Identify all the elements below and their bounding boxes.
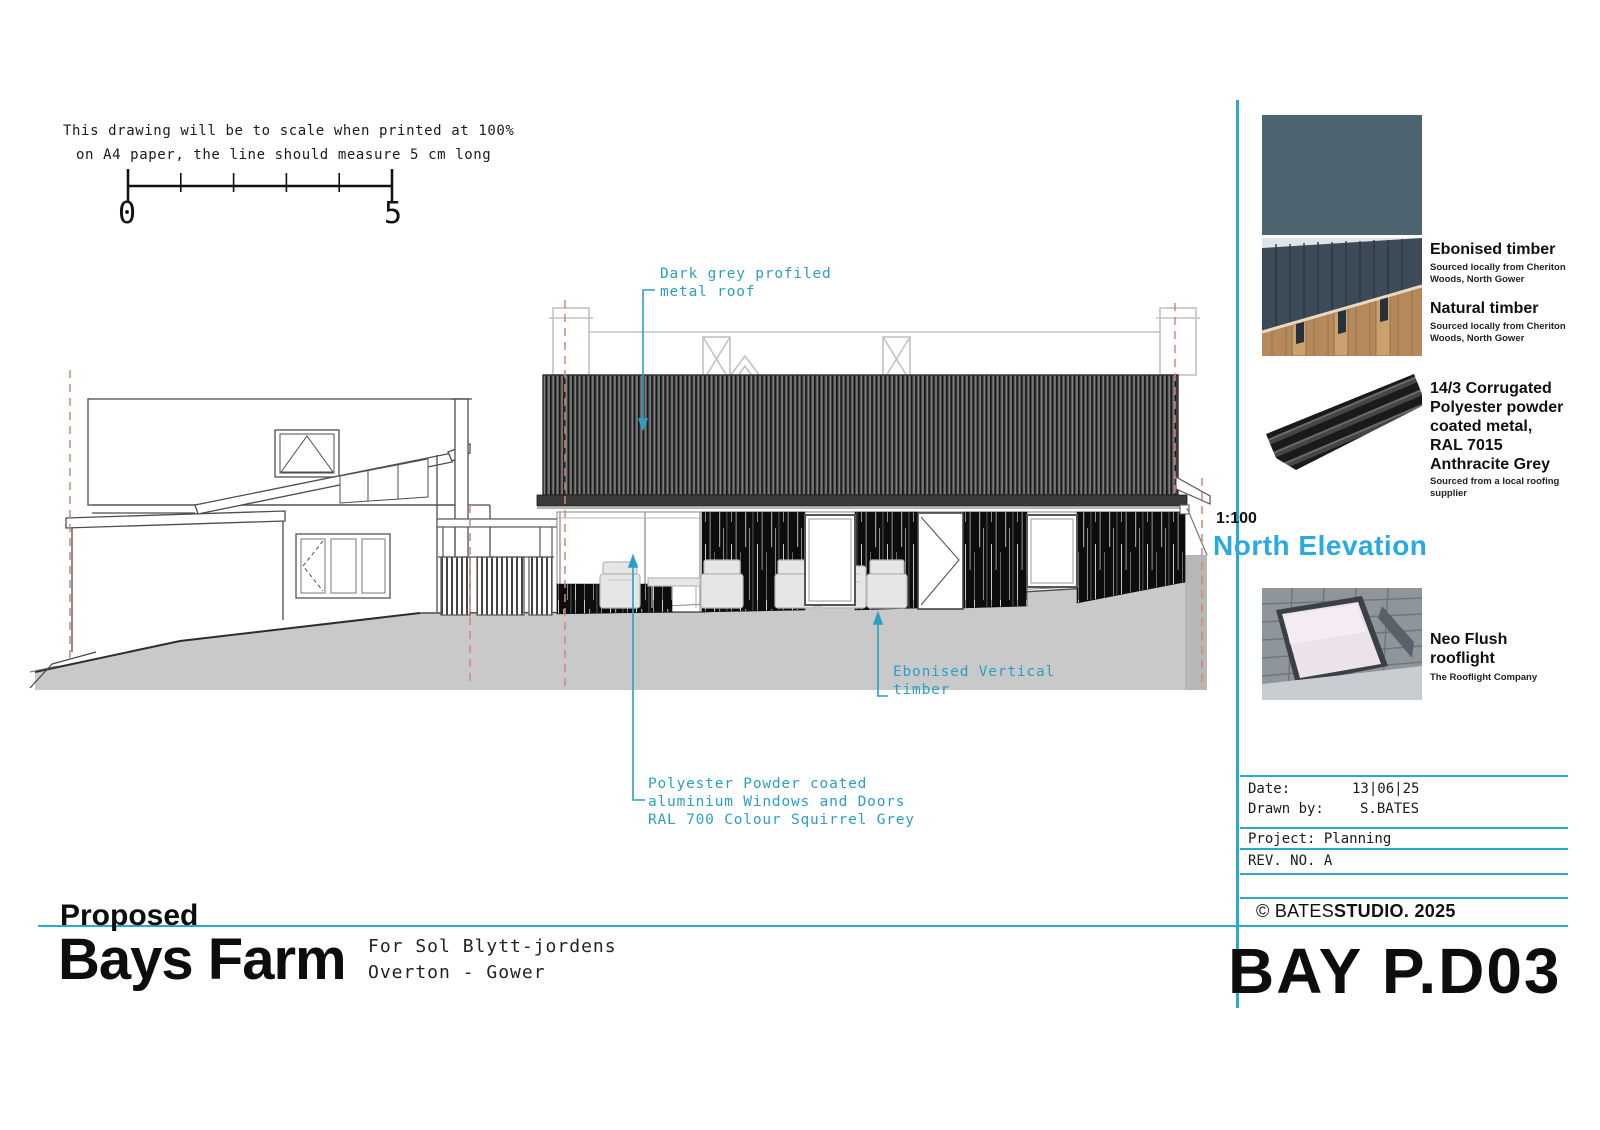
titleblock-rule [1240,827,1568,829]
titleblock-rule [1240,873,1568,875]
material-source-corrugated-metal: Sourced from a local roofing supplier [1430,476,1580,500]
material-source-natural-timber: Sourced locally from Cheriton Woods, Nor… [1430,321,1580,345]
view-title: North Elevation [1213,530,1427,562]
view-scale: 1:100 [1216,510,1257,528]
annotation-windows: Polyester Powder coated aluminium Window… [648,775,915,829]
annotation-windows-line1: Polyester Powder coated [648,775,915,793]
ground-right-block [1185,555,1207,690]
titleblock-rule [1240,897,1568,899]
copyright: © BATESSTUDIO. 2025 [1256,901,1456,922]
material-source-ebonised-timber: Sourced locally from Cheriton Woods, Nor… [1430,262,1580,286]
barn-facade [557,512,1185,614]
annotation-windows-line3: RAL 700 Colour Squirrel Grey [648,811,915,829]
material-label-corrugated-metal: 14/3 Corrugated Polyester powder coated … [1430,379,1590,474]
annotation-timber: Ebonised Vertical timber [893,663,1055,699]
annotation-roof-line1: Dark grey profiled [660,265,832,283]
material-label-natural-timber: Natural timber [1430,299,1538,318]
material-label-ebonised-timber: Ebonised timber [1430,240,1555,259]
slate-colour-swatch [1262,115,1422,235]
rooflight-photo [1262,588,1422,700]
copyright-prefix: © BATES [1256,901,1334,921]
corrugated-metal-photo [1262,372,1422,470]
timber-cladding-photo [1262,238,1422,356]
material-source-rooflight: The Rooflight Company [1430,672,1590,684]
titleblock-rule [1240,775,1568,777]
annotation-timber-line1: Ebonised Vertical [893,663,1055,681]
sheet-number: BAY P.D03 [1228,934,1562,1008]
fence-and-pergola [437,519,557,615]
titleblock-project: Project: Planning [1248,831,1391,847]
project-name: Bays Farm [58,926,346,993]
annotation-timber-line2: timber [893,681,1055,699]
annotation-windows-line2: aluminium Windows and Doors [648,793,915,811]
annotation-roof: Dark grey profiled metal roof [660,265,832,301]
titleblock-rule [1240,848,1568,850]
titleblock-date-label: Date: [1248,781,1290,797]
titleblock-rev: REV. NO. A [1248,853,1332,869]
material-label-rooflight: Neo Flush rooflight [1430,630,1580,668]
barn-door [918,513,963,609]
titleblock-date-value: 13|06|25 [1352,781,1419,797]
client-info: For Sol Blytt-jordens Overton - Gower [368,934,617,986]
titleblock-drawn-value: S.BATES [1360,801,1419,817]
client-line1: For Sol Blytt-jordens [368,934,617,960]
annotation-roof-line2: metal roof [660,283,832,301]
north-elevation-drawing [0,0,1220,910]
barn-window-1 [805,515,855,605]
barn-window-2 [1027,515,1077,587]
background-building-outline [549,308,1200,381]
copyright-bold: STUDIO. 2025 [1334,901,1456,921]
titleblock-drawn-label: Drawn by: [1248,801,1324,817]
client-line2: Overton - Gower [368,960,617,986]
drawing-sheet: This drawing will be to scale when print… [0,0,1600,1130]
